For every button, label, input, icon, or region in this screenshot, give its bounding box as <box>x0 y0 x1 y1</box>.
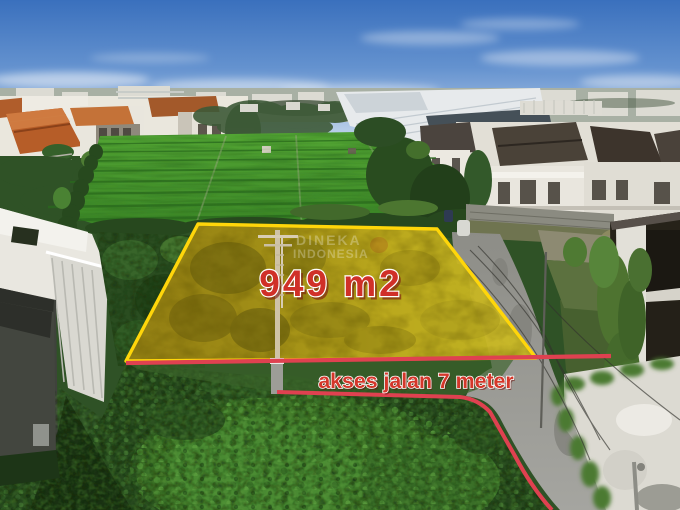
svg-text:949 m2: 949 m2 <box>259 263 403 304</box>
svg-text:DINEKA: DINEKA <box>296 232 362 248</box>
svg-text:akses jalan 7 meter: akses jalan 7 meter <box>318 369 513 393</box>
svg-text:INDONESIA: INDONESIA <box>293 247 369 261</box>
